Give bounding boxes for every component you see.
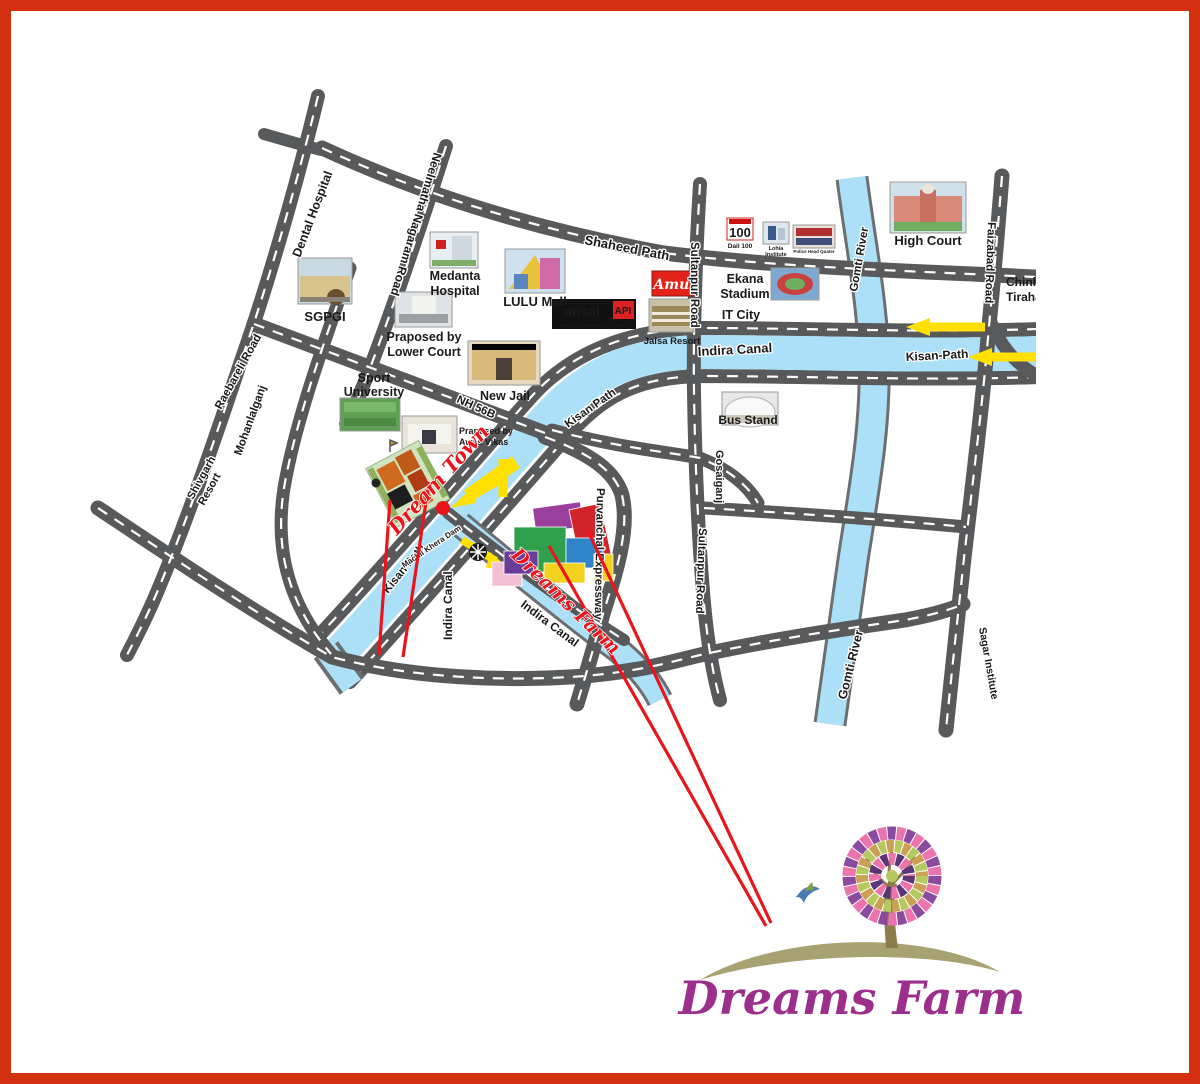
road-east-link xyxy=(552,430,758,503)
lohia-institute-photo xyxy=(763,222,789,244)
ansal-api-text: API xyxy=(615,306,632,317)
dream-town-gear-icon xyxy=(372,479,381,488)
label-sport-2: University xyxy=(344,385,404,399)
label-dail-100: Dail 100 xyxy=(728,243,753,250)
ansal-tagline: Building Lifestyles since 1967 xyxy=(562,323,627,328)
sport-university-photo xyxy=(340,398,400,431)
label-ekana-2: Stadium xyxy=(720,287,769,301)
new-jail-photo xyxy=(468,341,540,385)
red-pointer-dreams-farm-2 xyxy=(588,531,771,923)
label-high-court: High Court xyxy=(894,233,962,248)
label-chinhat-1: Chinhat xyxy=(1006,275,1051,289)
label-ekana-1: Ekana xyxy=(727,272,765,286)
label-medanta-1: Medanta xyxy=(430,269,482,283)
sgpgi-photo xyxy=(298,258,352,305)
label-chinhat-2: Tiraha xyxy=(1006,290,1042,304)
medanta-photo xyxy=(430,232,478,268)
logo-wordmark: Dreams Farm xyxy=(677,971,1026,1025)
ansal-text: ansal xyxy=(564,303,600,319)
road-mohanlalganj xyxy=(281,268,350,654)
label-sport-1: Sport xyxy=(358,371,391,385)
lulu-mall-photo xyxy=(505,249,565,293)
label-lulu-mall: LULU Mall xyxy=(503,294,567,309)
dail-100-logo: 100 xyxy=(727,218,753,240)
map-canvas: Amul 100 xyxy=(0,0,1200,1084)
label-gosaiganj: Gosaiganj xyxy=(713,450,725,503)
label-lower-court-1: Praposed by xyxy=(386,330,461,344)
label-sagar-institute: Sagar Institute xyxy=(976,626,1001,700)
label-indira-canal-vert: Indira Canal xyxy=(441,571,455,640)
label-police-hq: Police Head Quater xyxy=(793,249,835,254)
dail-100-number: 100 xyxy=(729,225,751,240)
bird-wing xyxy=(804,882,814,891)
label-jalsa-resort: Jalsa Resort xyxy=(644,336,701,347)
label-lower-court-2: Lower Court xyxy=(387,345,461,359)
high-court-photo xyxy=(890,182,966,233)
ekana-stadium-photo xyxy=(771,268,819,300)
label-sultanpur-top: Sultanpur Road xyxy=(688,242,700,328)
label-mohanlalganj: Mohanlalganj xyxy=(233,384,269,457)
label-faizabad-road: Faizabad Road xyxy=(982,222,997,304)
label-bus-stand: Bus Stand xyxy=(718,413,777,427)
label-new-jail: New Jail xyxy=(480,389,530,403)
location-map: Amul 100 xyxy=(0,0,1200,1084)
label-it-city: IT City xyxy=(722,308,760,322)
dream-town-tower-icon xyxy=(390,440,397,452)
label-lohia-2: Institute xyxy=(765,252,786,258)
jalsa-resort-photo xyxy=(649,299,694,332)
label-sgpgi: SGPGI xyxy=(304,309,345,324)
compass-icon xyxy=(469,543,487,561)
label-shaheed-path: Shaheed Path xyxy=(583,232,670,263)
label-medanta-2: Hospital xyxy=(430,284,479,298)
police-hq-photo xyxy=(793,225,835,248)
dream-town-marker xyxy=(436,501,450,515)
